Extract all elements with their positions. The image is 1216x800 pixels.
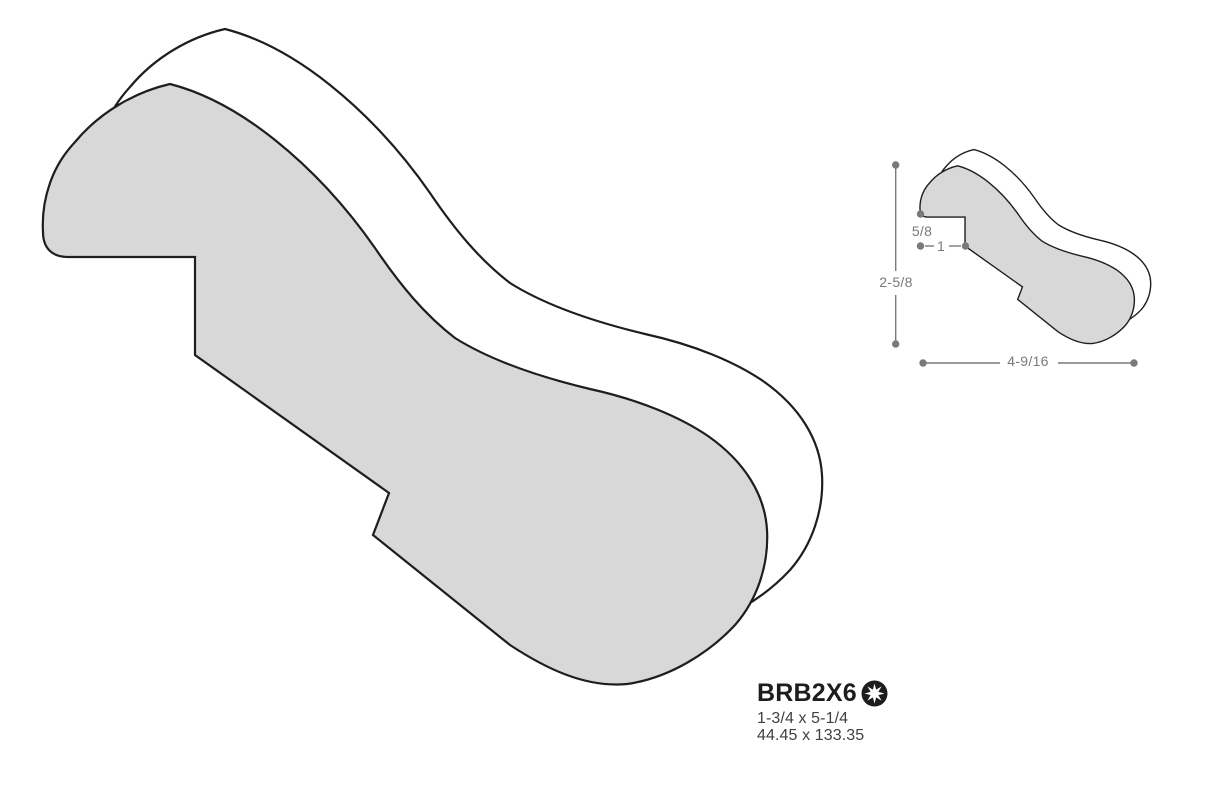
lip-dimension-label: 5/8: [887, 223, 957, 239]
product-size-metric: 44.45 x 133.35: [757, 727, 888, 744]
width-dim-left-dot: [919, 359, 926, 366]
step-dim-right-dot: [962, 242, 969, 249]
product-code-row: BRB2X6: [757, 680, 888, 706]
height-dim-bottom-dot: [892, 340, 899, 347]
height-dim-top-dot: [892, 161, 899, 168]
product-label-block: BRB2X6 1-3/4 x 5-1/4 44.45 x 133.35: [757, 680, 888, 744]
profile-drawing-canvas: [0, 0, 1216, 800]
lip-corner-dot: [917, 210, 924, 217]
step-dim-left-dot: [917, 242, 924, 249]
spec-sheet-page: 2-5/8 5/8 1 4-9/16 BRB2X6 1-3/4 x 5-1/4 …: [0, 0, 1216, 800]
starburst-badge-icon: [861, 680, 888, 707]
width-dimension-label: 4-9/16: [993, 353, 1063, 369]
large-profile-drawing: [43, 29, 822, 685]
width-dim-right-dot: [1130, 359, 1137, 366]
product-size-imperial: 1-3/4 x 5-1/4: [757, 710, 888, 727]
height-dimension-label: 2-5/8: [861, 274, 931, 290]
step-dimension-label: 1: [926, 238, 956, 254]
product-code: BRB2X6: [757, 680, 857, 706]
